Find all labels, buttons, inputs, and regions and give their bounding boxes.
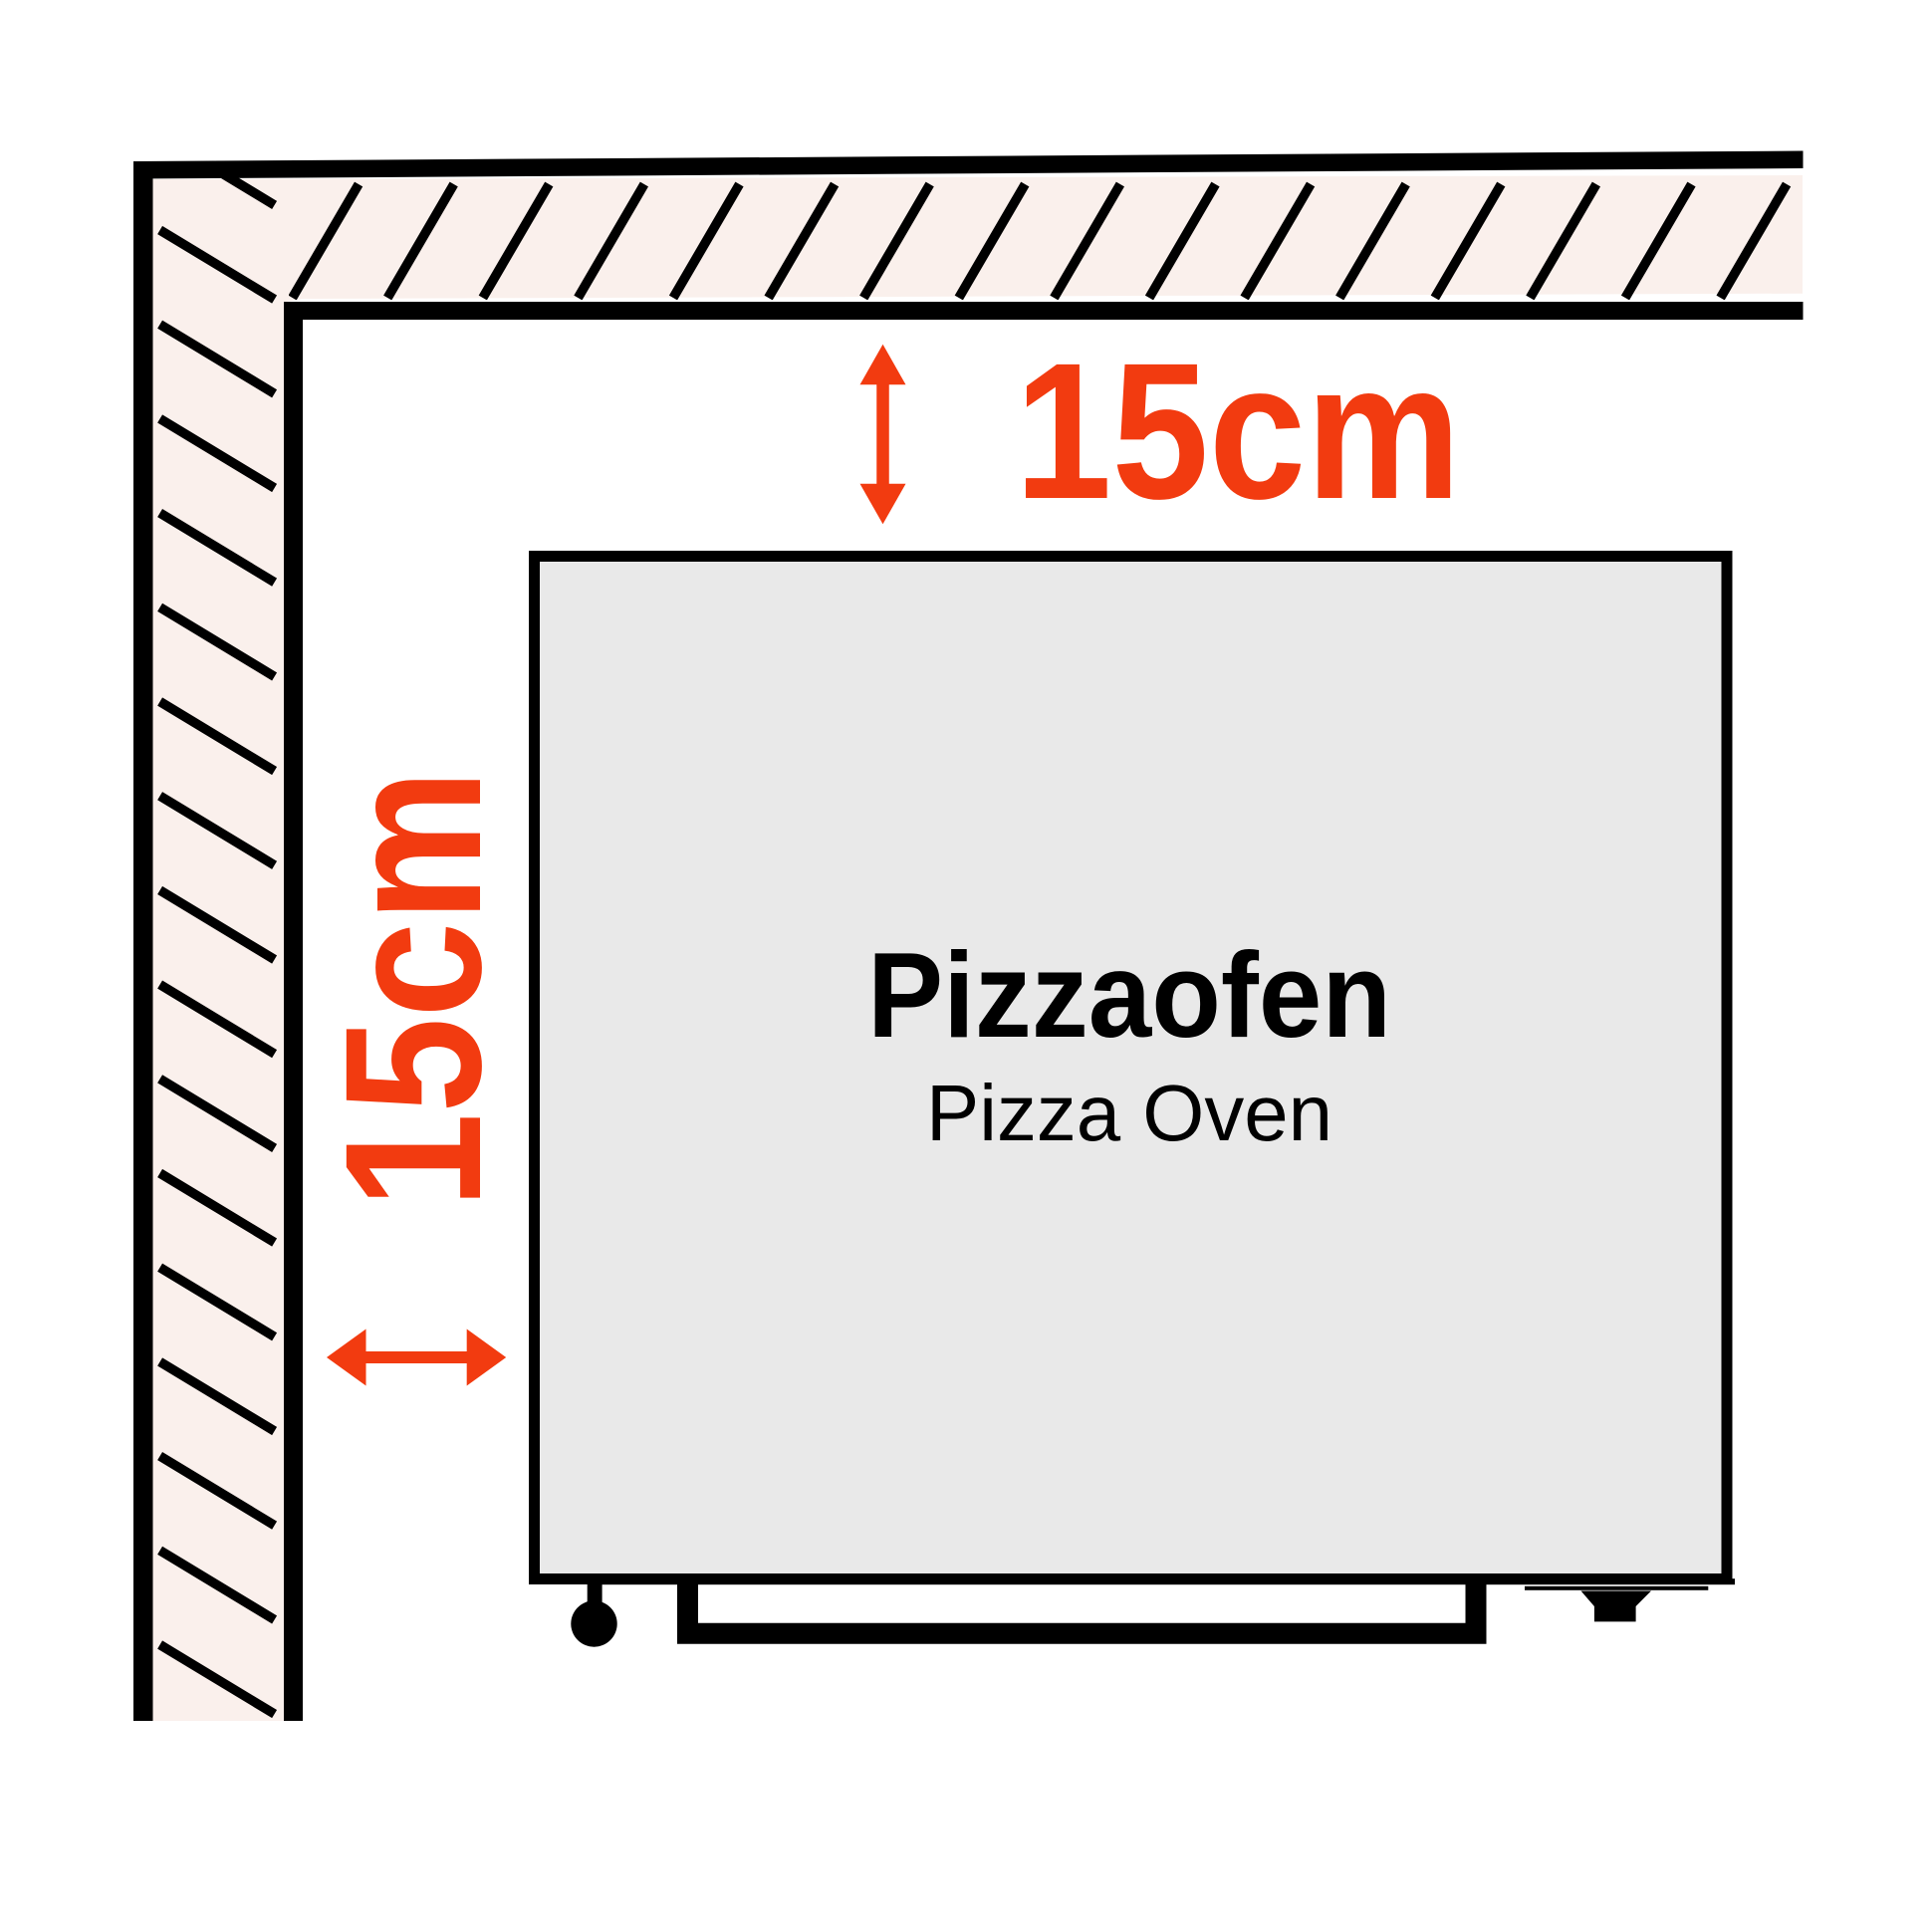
svg-text:15cm: 15cm	[305, 770, 522, 1209]
svg-text:Pizzaofen: Pizzaofen	[867, 927, 1391, 1063]
svg-text:15cm: 15cm	[1015, 323, 1461, 540]
svg-text:Pizza Oven: Pizza Oven	[926, 1069, 1332, 1157]
